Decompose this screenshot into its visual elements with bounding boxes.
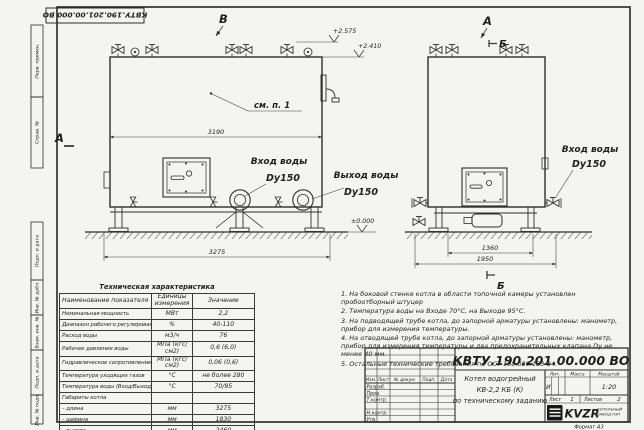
side-view-dimensions: [415, 28, 573, 279]
view-label-a-top: А: [482, 14, 492, 28]
drawing-sheet: КВТУ.190.201.00.000 ВО Перв. примен. Спр…: [0, 0, 644, 430]
stamp-row-label: Т.контр.: [367, 398, 388, 404]
margin-field-label: Подп. и дата: [35, 356, 41, 388]
outlet-dn-front: Dy150: [344, 187, 378, 198]
cell-value: 40-110: [192, 320, 254, 331]
elevation-zero: ±0.000: [351, 218, 374, 225]
furnace-door-front: [163, 158, 210, 197]
note-item: 4. На отводящей трубе котла, до запорной…: [341, 334, 630, 359]
view-label-a-left: А: [54, 131, 64, 145]
safety-valve-icon: [226, 45, 238, 54]
table-row: Рабочее давление водыМПа (кгс/см2)0,6 (6…: [60, 342, 255, 357]
front-view-dimensions: [64, 26, 376, 261]
cell-units: °С: [152, 382, 192, 393]
col-header: Значение: [192, 294, 254, 309]
cell-name: – ширина: [60, 415, 152, 426]
cell-value: 0,6 (6,0): [192, 342, 254, 357]
spec-table-block: Техническая характеристика Наименование …: [59, 283, 255, 430]
support-foot: [109, 228, 128, 232]
table-row: Диапазон рабочего регулирования%40-110: [60, 320, 255, 331]
margin-fields: Перв. примен. Справ. № Подп. и дата Инв.…: [31, 25, 43, 426]
sheet-label: Лист: [548, 397, 561, 403]
inlet-dn-front: Dy150: [266, 173, 300, 184]
inlet-valve-icon: [547, 198, 559, 207]
spec-table: Наименование показателя Единицы измерени…: [59, 293, 255, 430]
kvzr-logo: KVZR КОТЕЛЬНЫЙ ЗАВОД РЭП: [547, 405, 622, 421]
elevation-2575: +2.575: [333, 28, 356, 35]
margin-field-label: Взам. инв. №: [35, 316, 41, 348]
lit-value: И: [546, 384, 551, 391]
cell-value: не более 280: [192, 371, 254, 382]
stamp-title-line3: по техническому заданию: [453, 397, 548, 405]
cell-name: Температура уходящих газов: [60, 371, 152, 382]
margin-field-label: Справ. №: [35, 121, 41, 144]
cell-name: Габариты котла: [60, 393, 152, 404]
stamp-title-line1: Котел водогрейный: [464, 375, 536, 383]
side-view: [405, 45, 592, 240]
rev-header: Изм.: [366, 377, 377, 383]
kvzr-logo-text: KVZR: [565, 407, 600, 421]
drain-valve-icon: [130, 197, 137, 207]
ground-hatch: [405, 233, 592, 240]
technical-notes: 1. На боковой стенке котла в области топ…: [341, 290, 630, 369]
safety-valve-icon: [446, 45, 458, 54]
sheets-label: Листов: [583, 397, 602, 403]
cell-units: м3/ч: [152, 331, 192, 342]
callout-see-note-1: см. п. 1: [254, 101, 290, 111]
furnace-door-side: [462, 168, 507, 206]
cell-value: 0,06 (0,6): [192, 356, 254, 371]
support-foot: [305, 228, 324, 232]
spec-table-title: Техническая характеристика: [59, 283, 255, 291]
view-label-v: В: [219, 12, 228, 26]
cell-name: – длина: [60, 404, 152, 415]
lit-header: Лит.: [549, 371, 560, 377]
col-header: Единицы измерения: [152, 294, 192, 309]
cell-units: МПа (кгс/см2): [152, 356, 192, 371]
cell-units: мм: [152, 404, 192, 415]
side-view-texts: А Б Б 1360 1950 Вход воды Dy150: [477, 14, 619, 292]
note-item: 3. На подводящей трубе котла, до запорно…: [341, 317, 630, 333]
top-doc-number: КВТУ.190.201.00.000 ВО: [42, 11, 147, 20]
sheet-value: 1: [570, 397, 574, 403]
cell-name: Гидравлическое сопротивление котла: [60, 356, 152, 371]
door-viewport: [186, 171, 191, 176]
safety-valve-icon: [146, 45, 158, 54]
table-row: Расход водым3/ч76: [60, 331, 255, 342]
format-label: Формат А3: [574, 425, 604, 430]
cell-value: 70/95: [192, 382, 254, 393]
stamp-title-line2: КВ-2,2 КБ (К): [477, 386, 524, 394]
cell-value: 76: [192, 331, 254, 342]
cell-name: – высота: [60, 426, 152, 430]
scale-header: Масштаб: [598, 371, 620, 377]
ground-hatch: [85, 233, 348, 240]
table-row: – длинамм3275: [60, 404, 255, 415]
safety-valve-icon: [281, 45, 293, 54]
col-header: Наименование показателя: [60, 294, 152, 309]
scale-value: 1:20: [602, 383, 617, 391]
table-row: Гидравлическое сопротивление котлаМПа (к…: [60, 356, 255, 371]
rev-header: Подп.: [422, 377, 436, 383]
cell-value: 1830: [192, 415, 254, 426]
safety-valve-icon: [516, 45, 528, 54]
cell-name: Температура воды (Вход/Выход): [60, 382, 152, 393]
drain-valve-icon: [210, 197, 217, 207]
margin-field-label: Подп. и дата: [35, 235, 41, 267]
inlet-dn-side: Dy150: [572, 159, 606, 170]
safety-valve-icon: [240, 45, 252, 54]
cell-name: Номинальная мощность: [60, 309, 152, 320]
stamp-row-label: Пров.: [367, 391, 381, 397]
safety-valve-icon: [112, 45, 124, 54]
table-row: – ширинамм1830: [60, 415, 255, 426]
rev-header: Дата: [440, 377, 453, 383]
margin-field-label: Инв. № дубл.: [35, 281, 41, 313]
dim-1950: 1950: [477, 255, 494, 263]
support-foot: [230, 228, 249, 232]
kvzr-caption-2: ЗАВОД РЭП: [597, 412, 620, 417]
safety-valve-icon: [430, 45, 442, 54]
cell-value: 2460: [192, 426, 254, 430]
margin-field-label: Инв. № подл.: [35, 393, 41, 425]
table-row: Температура уходящих газов°Сне более 280: [60, 371, 255, 382]
cell-units: МПа (кгс/см2): [152, 342, 192, 357]
support-foot: [429, 228, 448, 232]
table-row: Номинальная мощностьМВт2,2: [60, 309, 255, 320]
cell-name: Рабочее давление воды: [60, 342, 152, 357]
cell-units: МВт: [152, 309, 192, 320]
front-view: [85, 45, 348, 240]
door-handle: [470, 185, 482, 188]
mass-header: Масса: [570, 371, 585, 377]
sheets-value: 2: [617, 397, 621, 403]
burner: [472, 214, 502, 227]
note-item: 5. Остальные технические требования по О…: [341, 360, 630, 368]
inlet-label-front: Вход воды: [251, 157, 308, 167]
cell-units: %: [152, 320, 192, 331]
stamp-row-label: Разраб.: [367, 385, 386, 391]
dim-1360: 1360: [482, 244, 499, 252]
side-valve-icon: [413, 217, 425, 226]
note-item: 1. На боковой стенке котла в области топ…: [341, 290, 630, 306]
outlet-label-front: Выход воды: [334, 171, 399, 181]
elevation-2410: +2.410: [358, 43, 381, 50]
stamp-row-label: Утв.: [367, 417, 377, 423]
stamp-row-label: Н.контр.: [367, 411, 388, 417]
cell-name: Диапазон рабочего регулирования: [60, 320, 152, 331]
cell-units: °С: [152, 371, 192, 382]
section-label-b-top: Б: [499, 39, 507, 50]
margin-field-label: Перв. примен.: [35, 43, 41, 78]
note-item: 2. Температура воды на Входе 70°С, на Вы…: [341, 307, 630, 315]
inlet-label-side: Вход воды: [562, 145, 619, 155]
sampling-fitting: [321, 75, 339, 102]
cell-value: 2,2: [192, 309, 254, 320]
table-row: – высотамм2460: [60, 426, 255, 430]
dim-3190: 3190: [208, 128, 225, 136]
table-row: Температура воды (Вход/Выход)°С70/95: [60, 382, 255, 393]
door-viewport: [486, 180, 491, 185]
cell-value: 3275: [192, 404, 254, 415]
cell-name: Расход воды: [60, 331, 152, 342]
cell-units: мм: [152, 415, 192, 426]
dim-3275: 3275: [209, 248, 226, 256]
table-header-row: Наименование показателя Единицы измерени…: [60, 294, 255, 309]
drain-valve-icon: [275, 197, 282, 207]
cell-units: мм: [152, 426, 192, 430]
rev-header: Лист: [377, 377, 390, 383]
side-valve-icon: [414, 198, 426, 207]
cell-value: [192, 393, 254, 404]
wall-bracket: [104, 172, 110, 188]
door-handle: [171, 176, 184, 180]
cell-units: [152, 393, 192, 404]
table-row: Габариты котла: [60, 393, 255, 404]
support-foot: [521, 228, 540, 232]
rev-header: № докум.: [393, 377, 416, 383]
